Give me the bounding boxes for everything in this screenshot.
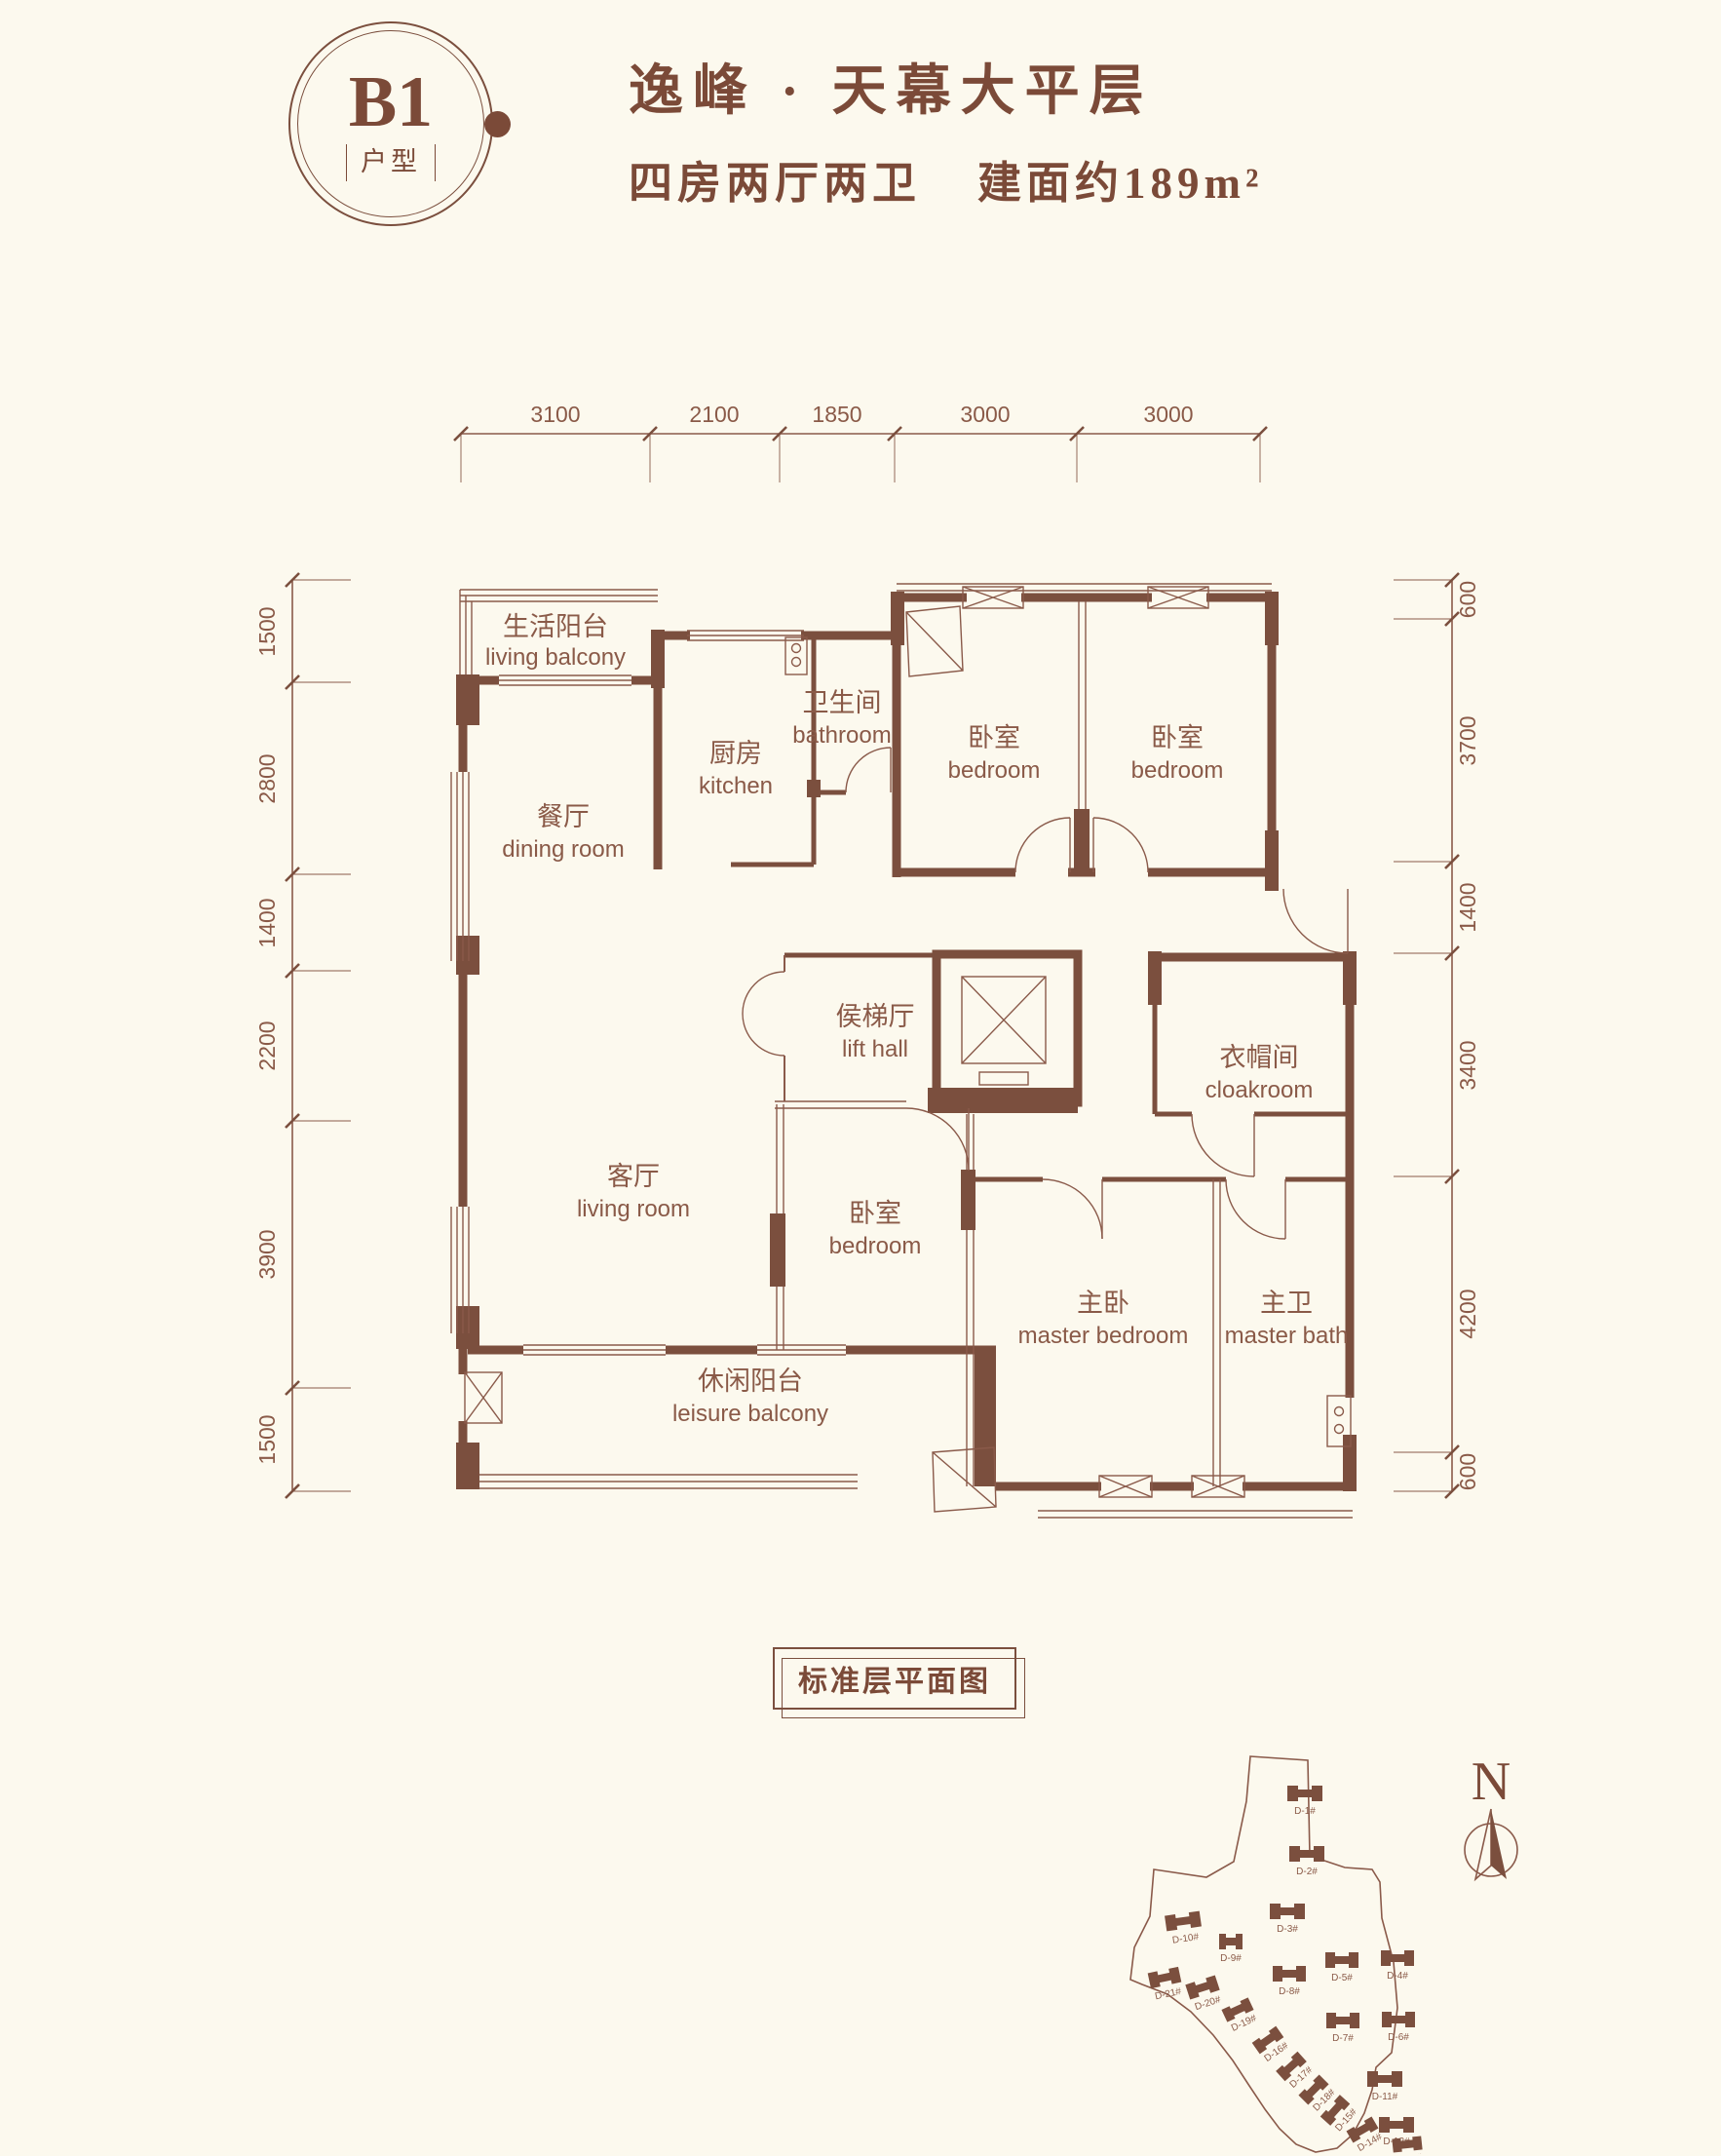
svg-text:D-4#: D-4# — [1387, 1971, 1408, 1982]
svg-text:lift hall: lift hall — [842, 1036, 908, 1062]
site-building: D-4# — [1381, 1950, 1414, 1982]
svg-text:kitchen: kitchen — [699, 773, 773, 799]
site-building: D-3# — [1270, 1904, 1305, 1935]
svg-text:餐厅: 餐厅 — [537, 802, 590, 831]
svg-text:主卧: 主卧 — [1077, 1289, 1129, 1318]
dim-right-2: 3700 — [1455, 715, 1480, 765]
dim-top-5: 3000 — [1143, 402, 1193, 427]
site-building: D-19# — [1221, 1997, 1259, 2034]
floor-plan-drawing: 3100 2100 1850 3000 3000 5200 3200 3900 … — [224, 390, 1579, 1521]
svg-text:master bath: master bath — [1225, 1323, 1349, 1349]
room-label-lift-hall: 侯梯厅 lift hall — [836, 1002, 915, 1062]
room-label-bathroom: 卫生间 bathroom — [792, 688, 891, 749]
room-label-kitchen: 厨房 kitchen — [699, 739, 773, 799]
svg-text:D-3#: D-3# — [1277, 1924, 1298, 1935]
dim-right-1: 600 — [1455, 581, 1480, 618]
dim-right-4: 3400 — [1455, 1040, 1480, 1090]
site-buildings: D-1# D-2# D-3# D-4# D-5# D-6# D-7# D-8# … — [1148, 1786, 1424, 2154]
svg-text:living room: living room — [577, 1196, 690, 1222]
dim-left-4: 2200 — [254, 1020, 280, 1070]
svg-text:生活阳台: 生活阳台 — [503, 612, 608, 641]
floor-plan-page: { "page": { "background": "#fcf9ee", "ac… — [0, 0, 1721, 2156]
dim-right-6: 600 — [1455, 1453, 1480, 1490]
svg-text:卧室: 卧室 — [1151, 723, 1204, 752]
svg-text:bedroom: bedroom — [829, 1233, 922, 1259]
dimension-chain-top: 3100 2100 1850 3000 3000 — [454, 402, 1267, 482]
room-label-living-room: 客厅 living room — [577, 1162, 690, 1222]
room-label-cloakroom: 衣帽间 cloakroom — [1205, 1043, 1314, 1103]
svg-text:living balcony: living balcony — [485, 644, 626, 671]
standard-floor-plan-label: 标准层平面图 — [773, 1647, 1016, 1710]
room-label-master-bedroom: 主卧 master bedroom — [1018, 1289, 1189, 1349]
unit-type-badge: B1 户型 — [288, 21, 493, 226]
unit-code: B1 — [349, 66, 433, 138]
dim-left-2: 2800 — [254, 753, 280, 803]
svg-text:D-11#: D-11# — [1372, 2092, 1398, 2102]
site-building: D-8# — [1273, 1966, 1306, 1997]
room-label-master-bath: 主卫 master bath — [1225, 1289, 1349, 1349]
room-label-bedroom-top-left: 卧室 bedroom — [948, 723, 1041, 784]
svg-text:D-21#: D-21# — [1154, 1986, 1182, 2003]
svg-text:master bedroom: master bedroom — [1018, 1323, 1189, 1349]
svg-text:dining room: dining room — [502, 836, 624, 863]
dim-left-3: 1400 — [254, 898, 280, 947]
north-label: N — [1472, 1752, 1511, 1812]
dimension-chain-right: 600 3700 1400 3400 4200 600 — [1394, 573, 1480, 1498]
room-label-dining-room: 餐厅 dining room — [502, 802, 624, 863]
site-building: D-2# — [1289, 1846, 1324, 1877]
dim-left-5: 3900 — [254, 1229, 280, 1279]
badge-dot-decoration — [484, 111, 511, 137]
dim-top-3: 1850 — [812, 402, 861, 427]
svg-text:D-2#: D-2# — [1296, 1867, 1318, 1877]
dim-right-5: 4200 — [1455, 1289, 1480, 1338]
svg-text:bedroom: bedroom — [1131, 757, 1224, 784]
svg-text:侯梯厅: 侯梯厅 — [836, 1002, 915, 1031]
site-building: D-20# — [1185, 1975, 1224, 2013]
floor-area-text: 建面约189m² — [977, 147, 1263, 211]
svg-text:D-10#: D-10# — [1171, 1932, 1200, 1946]
project-title: 逸峰 · 天幕大平层 — [629, 47, 1264, 126]
room-label-living-balcony: 生活阳台 living balcony — [485, 612, 626, 671]
elevator-shaft — [937, 954, 1078, 1102]
svg-text:D-1#: D-1# — [1294, 1806, 1316, 1817]
room-label-bedroom-top-right: 卧室 bedroom — [1131, 723, 1224, 784]
dimension-chain-left: 1500 2800 1400 2200 3900 1500 — [254, 573, 351, 1498]
svg-text:leisure balcony: leisure balcony — [672, 1401, 828, 1427]
site-building: D-16# — [1252, 2026, 1292, 2065]
site-building: D-7# — [1326, 2013, 1359, 2044]
site-building: D-21# — [1148, 1967, 1185, 2003]
svg-text:卫生间: 卫生间 — [803, 688, 882, 717]
svg-text:D-6#: D-6# — [1388, 2032, 1409, 2043]
dim-right-3: 1400 — [1455, 882, 1480, 932]
site-building: D-11# — [1367, 2071, 1402, 2102]
dim-left-1: 1500 — [254, 606, 280, 656]
svg-text:bathroom: bathroom — [792, 722, 891, 749]
svg-text:卧室: 卧室 — [849, 1199, 901, 1228]
room-count-text: 四房两厅两卫 — [629, 147, 921, 211]
site-building: D-5# — [1325, 1952, 1358, 1983]
site-plan: N D-1# D-2# D-3# D-4# D-5# D-6# D-7# — [1121, 1743, 1721, 2154]
dim-left-6: 1500 — [254, 1414, 280, 1464]
dim-top-1: 3100 — [530, 402, 580, 427]
compass-needle-left — [1475, 1809, 1491, 1879]
site-building: D-9# — [1219, 1934, 1243, 1964]
dim-top-2: 2100 — [689, 402, 739, 427]
room-labels: 生活阳台 living balcony 餐厅 dining room 厨房 ki… — [485, 612, 1348, 1427]
svg-text:bedroom: bedroom — [948, 757, 1041, 784]
svg-text:衣帽间: 衣帽间 — [1220, 1043, 1299, 1072]
site-building: D-6# — [1382, 2012, 1415, 2043]
dim-top-4: 3000 — [960, 402, 1010, 427]
site-building: D-17# — [1276, 2052, 1316, 2092]
site-building: D-1# — [1287, 1786, 1322, 1817]
svg-text:D-7#: D-7# — [1332, 2033, 1354, 2044]
unit-code-label: 户型 — [346, 144, 436, 181]
compass-needle-right — [1491, 1809, 1507, 1879]
svg-text:D-8#: D-8# — [1279, 1986, 1300, 1997]
svg-text:D-13#: D-13# — [1395, 2152, 1423, 2154]
unit-subtitle: 四房两厅两卫 建面约189m² — [629, 147, 1264, 211]
svg-text:主卫: 主卫 — [1260, 1289, 1313, 1318]
svg-text:卧室: 卧室 — [968, 723, 1020, 752]
north-compass: N — [1465, 1752, 1517, 1879]
room-label-leisure-balcony: 休闲阳台 leisure balcony — [672, 1367, 828, 1427]
title-block: 逸峰 · 天幕大平层 四房两厅两卫 建面约189m² — [629, 47, 1264, 211]
svg-text:D-9#: D-9# — [1220, 1953, 1242, 1964]
svg-text:客厅: 客厅 — [607, 1162, 660, 1191]
svg-text:厨房: 厨房 — [709, 739, 762, 768]
svg-text:休闲阳台: 休闲阳台 — [698, 1367, 803, 1396]
site-building: D-10# — [1165, 1911, 1204, 1947]
svg-text:cloakroom: cloakroom — [1205, 1077, 1314, 1103]
room-label-bedroom-middle: 卧室 bedroom — [829, 1199, 922, 1259]
svg-text:D-5#: D-5# — [1331, 1973, 1353, 1983]
